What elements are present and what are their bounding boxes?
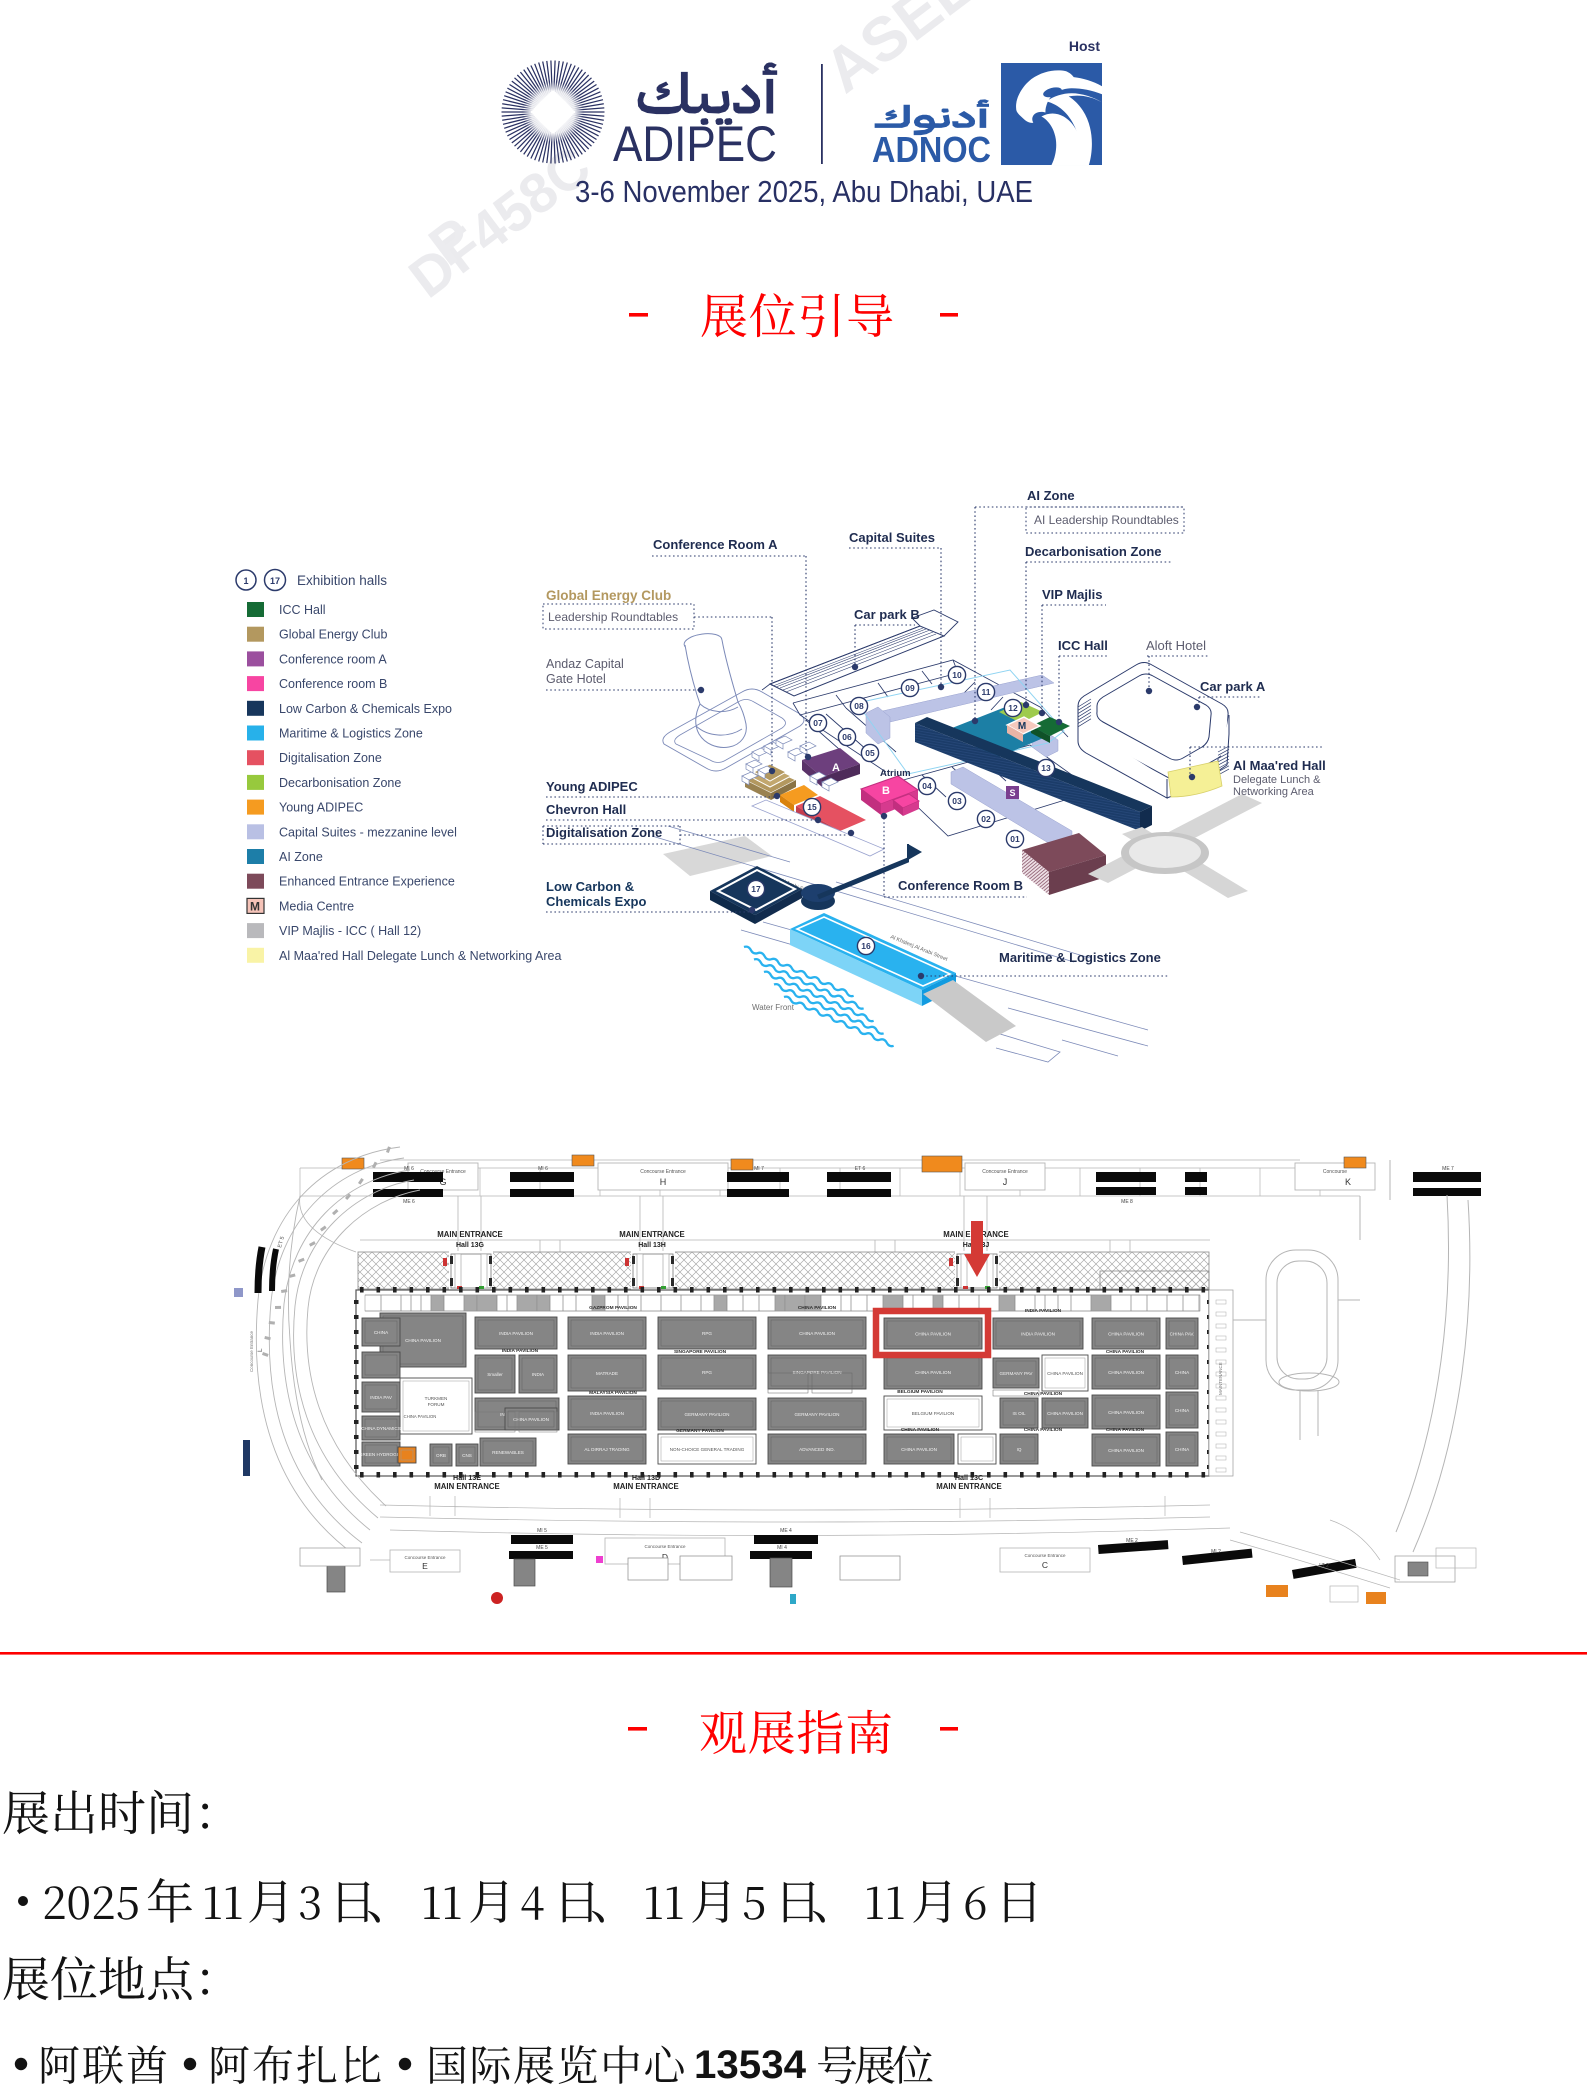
svg-text:FORUM: FORUM <box>428 1402 445 1407</box>
svg-text:Exhibition halls: Exhibition halls <box>297 573 387 588</box>
svg-text:INDIA PAV: INDIA PAV <box>370 1395 393 1400</box>
svg-text:CHINA PAVILION: CHINA PAVILION <box>1106 1427 1145 1433</box>
svg-text:1: 1 <box>243 576 248 586</box>
svg-text:CHINA PAVILION: CHINA PAVILION <box>1108 1448 1144 1453</box>
svg-text:ADNOC: ADNOC <box>872 129 991 170</box>
svg-text:Decarbonisation Zone: Decarbonisation Zone <box>1025 544 1162 559</box>
svg-text:CHINA PAVILION: CHINA PAVILION <box>404 1414 437 1419</box>
svg-text:Concourse Entrance: Concourse Entrance <box>249 1330 254 1372</box>
svg-text:INDIA: INDIA <box>532 1372 545 1377</box>
svg-text:MI 5: MI 5 <box>537 1528 547 1534</box>
svg-text:Water Front: Water Front <box>752 1003 795 1012</box>
svg-text:A: A <box>832 762 840 774</box>
svg-text:ORB: ORB <box>436 1453 446 1458</box>
svg-text:ICC Hall: ICC Hall <box>279 603 326 617</box>
svg-text:15: 15 <box>807 802 817 812</box>
svg-text:CHINA PAVILION: CHINA PAVILION <box>901 1447 937 1452</box>
svg-text:Hall 13E: Hall 13E <box>453 1473 481 1482</box>
svg-text:MAIN ENTRANCE: MAIN ENTRANCE <box>434 1482 499 1491</box>
svg-text:Global Energy Club: Global Energy Club <box>546 588 671 603</box>
svg-text:MAIN ENTRANCE: MAIN ENTRANCE <box>936 1482 1001 1491</box>
svg-text:Car park A: Car park A <box>1200 679 1266 694</box>
svg-text:VIP Majlis - ICC ( Hall 12): VIP Majlis - ICC ( Hall 12) <box>279 924 421 938</box>
svg-text:L: L <box>257 1348 264 1352</box>
svg-text:GERMANY PAVILION: GERMANY PAVILION <box>685 1412 730 1417</box>
svg-text:CHINA: CHINA <box>374 1330 389 1335</box>
svg-text:Maritime & Logistics Zone: Maritime & Logistics Zone <box>279 727 423 741</box>
svg-text:C: C <box>1042 1560 1048 1570</box>
svg-text:CHINA PAVILION: CHINA PAVILION <box>1106 1349 1145 1355</box>
svg-text:07: 07 <box>813 718 823 728</box>
svg-text:Hall 13G: Hall 13G <box>456 1242 485 1249</box>
svg-text:CHINA PAVILION: CHINA PAVILION <box>405 1338 441 1343</box>
svg-text:CHINA PAVILION: CHINA PAVILION <box>1108 1410 1144 1415</box>
svg-text:ET 6: ET 6 <box>855 1166 866 1172</box>
svg-text:17: 17 <box>751 884 761 894</box>
svg-text:Conference room B: Conference room B <box>279 677 387 691</box>
svg-text:CNS: CNS <box>462 1453 472 1458</box>
svg-text:INDIA PAVILION: INDIA PAVILION <box>502 1348 539 1354</box>
svg-text:AL DIRRAJ TRADING: AL DIRRAJ TRADING <box>584 1447 630 1452</box>
svg-text:MI 4: MI 4 <box>777 1545 787 1551</box>
svg-text:S: S <box>1009 788 1015 798</box>
svg-text:AI Zone: AI Zone <box>1027 488 1075 503</box>
svg-text:16: 16 <box>861 941 871 951</box>
svg-text:CHINA PAVILION: CHINA PAVILION <box>1108 1332 1144 1337</box>
svg-text:RPG: RPG <box>702 1331 712 1336</box>
svg-text:K: K <box>1345 1177 1351 1187</box>
svg-text:Maritime & Logistics Zone: Maritime & Logistics Zone <box>999 950 1161 965</box>
svg-text:INDIA PAVILION: INDIA PAVILION <box>590 1331 624 1336</box>
svg-text:Host: Host <box>1069 38 1100 54</box>
svg-text:ME 7: ME 7 <box>1442 1166 1454 1172</box>
svg-text:Media Centre: Media Centre <box>279 899 354 913</box>
svg-text:SINGAPORE PAVILION: SINGAPORE PAVILION <box>792 1370 841 1375</box>
svg-text:Smaller: Smaller <box>487 1372 503 1377</box>
svg-text:Enhanced Entrance Experience: Enhanced Entrance Experience <box>279 875 455 889</box>
svg-text:INDIA PAVILION: INDIA PAVILION <box>590 1411 624 1416</box>
svg-text:Andaz Capital: Andaz Capital <box>546 657 624 671</box>
svg-text:MAIN ENTRANCE: MAIN ENTRANCE <box>437 1230 502 1239</box>
svg-text:CHINA PAVILION: CHINA PAVILION <box>798 1305 837 1311</box>
svg-text:MAIN ENTRANCE: MAIN ENTRANCE <box>619 1230 684 1239</box>
svg-text:Concourse: Concourse <box>1323 1169 1347 1175</box>
svg-text:MATRADE: MATRADE <box>596 1371 618 1376</box>
svg-text:NON-CHOICE GENERAL TRADING: NON-CHOICE GENERAL TRADING <box>670 1447 745 1452</box>
svg-text:02: 02 <box>981 814 991 824</box>
svg-text:Networking Area: Networking Area <box>1233 786 1315 798</box>
svg-text:MALAYSIA PAVILION: MALAYSIA PAVILION <box>589 1390 637 1396</box>
svg-text:IQ: IQ <box>1017 1447 1022 1452</box>
svg-text:Low Carbon &: Low Carbon & <box>546 879 634 894</box>
svg-text:CHINA PAVILION: CHINA PAVILION <box>915 1332 951 1337</box>
svg-text:M: M <box>1018 721 1026 732</box>
svg-text:09: 09 <box>905 683 915 693</box>
svg-text:Concourse Entrance: Concourse Entrance <box>982 1169 1028 1175</box>
svg-text:Decarbonisation Zone: Decarbonisation Zone <box>279 776 401 790</box>
svg-text:CHINA PAVILION: CHINA PAVILION <box>1047 1411 1083 1416</box>
svg-text:Aloft Hotel: Aloft Hotel <box>1146 638 1206 653</box>
svg-text:Digitalisation Zone: Digitalisation Zone <box>546 825 662 840</box>
svg-text:AI Leadership Roundtables: AI Leadership Roundtables <box>1034 513 1179 527</box>
svg-text:CHINA PAVILION: CHINA PAVILION <box>799 1331 835 1336</box>
svg-text:Chemicals Expo: Chemicals Expo <box>546 894 646 909</box>
svg-text:CHINA PAVILION: CHINA PAVILION <box>901 1427 940 1433</box>
svg-text:CHINA DYNAMICS: CHINA DYNAMICS <box>361 1426 401 1431</box>
svg-text:GAZPROM PAVILION: GAZPROM PAVILION <box>589 1305 637 1311</box>
svg-text:INDIA PAVILION: INDIA PAVILION <box>1025 1308 1062 1314</box>
svg-text:12: 12 <box>1008 703 1018 713</box>
svg-text:Young ADIPEC: Young ADIPEC <box>279 801 363 815</box>
svg-text:CHINA PAV.: CHINA PAV. <box>1170 1332 1195 1337</box>
svg-text:01: 01 <box>1010 834 1020 844</box>
svg-text:GERMANY PAVILION: GERMANY PAVILION <box>795 1412 840 1417</box>
svg-text:CHINA: CHINA <box>1175 1447 1190 1452</box>
svg-text:Delegate Lunch &: Delegate Lunch & <box>1233 774 1321 786</box>
svg-text:Capital Suites - mezzanine lev: Capital Suites - mezzanine level <box>279 825 457 839</box>
svg-text:03: 03 <box>952 796 962 806</box>
svg-text:ADVANCED IND.: ADVANCED IND. <box>799 1447 835 1452</box>
svg-text:Conference room A: Conference room A <box>279 652 387 666</box>
svg-text:GERMANY PAVILION: GERMANY PAVILION <box>676 1428 724 1434</box>
svg-text:MAIN ENTRANCE: MAIN ENTRANCE <box>613 1482 678 1491</box>
svg-text:ADIPEC: ADIPEC <box>613 116 777 172</box>
svg-text:MI 6: MI 6 <box>538 1166 548 1172</box>
svg-text:13: 13 <box>1041 763 1051 773</box>
svg-text:17: 17 <box>270 576 280 586</box>
svg-text:INDIA PAVILION: INDIA PAVILION <box>1021 1332 1055 1337</box>
svg-text:ET 5: ET 5 <box>277 1236 286 1249</box>
svg-text:3-6 November 2025, Abu Dhabi,: 3-6 November 2025, Abu Dhabi, UAE <box>575 174 1033 209</box>
svg-text:CHINA: CHINA <box>1175 1408 1190 1413</box>
svg-text:IS OIL: IS OIL <box>1012 1411 1025 1416</box>
svg-text:13534: 13534 <box>694 2043 807 2087</box>
svg-text:Young ADIPEC: Young ADIPEC <box>546 779 638 794</box>
svg-text:ME 6: ME 6 <box>403 1199 415 1205</box>
svg-text:Concourse Entrance: Concourse Entrance <box>404 1555 446 1560</box>
svg-text:Leadership Roundtables: Leadership Roundtables <box>548 610 678 624</box>
svg-text:Al Maa'red Hall Delegate Lunch: Al Maa'red Hall Delegate Lunch & Network… <box>279 949 561 963</box>
svg-text:J: J <box>1003 1177 1008 1187</box>
svg-text:MAINTENANCE: MAINTENANCE <box>1218 1362 1223 1395</box>
svg-text:H: H <box>660 1177 667 1187</box>
svg-text:VIP Majlis: VIP Majlis <box>1042 587 1102 602</box>
svg-text:Concourse Entrance: Concourse Entrance <box>640 1169 686 1175</box>
svg-text:Low Carbon & Chemicals Expo: Low Carbon & Chemicals Expo <box>279 702 452 716</box>
svg-text:GREEN HYDROGEN: GREEN HYDROGEN <box>359 1452 403 1457</box>
svg-text:Al Maa'red Hall: Al Maa'red Hall <box>1233 758 1326 773</box>
svg-text:BELGIUM PAVILION: BELGIUM PAVILION <box>897 1389 943 1395</box>
svg-text:CHINA PAVILION: CHINA PAVILION <box>1024 1427 1063 1433</box>
svg-text:M: M <box>250 899 260 913</box>
svg-text:ME 4: ME 4 <box>780 1528 792 1534</box>
svg-text:Conference Room A: Conference Room A <box>653 537 778 552</box>
svg-text:ME 2: ME 2 <box>1126 1538 1138 1544</box>
svg-text:MI 2: MI 2 <box>1211 1549 1221 1555</box>
svg-text:Capital Suites: Capital Suites <box>849 530 935 545</box>
svg-text:Hall 13C: Hall 13C <box>955 1473 983 1482</box>
svg-text:ME 5: ME 5 <box>536 1545 548 1551</box>
svg-text:Atrium: Atrium <box>880 768 911 779</box>
svg-text:11: 11 <box>982 687 991 697</box>
svg-text:TURKMEN: TURKMEN <box>425 1396 448 1401</box>
svg-text:CHINA PAVILION: CHINA PAVILION <box>1108 1370 1144 1375</box>
svg-text:ICC Hall: ICC Hall <box>1058 638 1108 653</box>
svg-text:Concourse Entrance: Concourse Entrance <box>644 1544 686 1549</box>
svg-text:Chevron Hall: Chevron Hall <box>546 802 626 817</box>
svg-text:Digitalisation Zone: Digitalisation Zone <box>279 751 382 765</box>
svg-text:RENEWABLES: RENEWABLES <box>492 1450 524 1455</box>
svg-text:08: 08 <box>854 701 864 711</box>
svg-text:Gate Hotel: Gate Hotel <box>546 672 606 686</box>
svg-text:E: E <box>422 1561 428 1571</box>
svg-text:INDIA PAVILION: INDIA PAVILION <box>499 1331 533 1336</box>
svg-text:CHINA PAVILION: CHINA PAVILION <box>915 1370 951 1375</box>
svg-text:ME 8: ME 8 <box>1121 1199 1133 1205</box>
svg-text:CHINA: CHINA <box>1175 1370 1190 1375</box>
svg-text:04: 04 <box>922 781 932 791</box>
svg-text:CHINA PAVILION: CHINA PAVILION <box>1047 1371 1083 1376</box>
svg-text:10: 10 <box>952 670 962 680</box>
svg-text:Conference Room B: Conference Room B <box>898 878 1023 893</box>
svg-text:CHINA PAVILION: CHINA PAVILION <box>1024 1391 1063 1397</box>
svg-text:RPG: RPG <box>702 1370 712 1375</box>
svg-text:AI Zone: AI Zone <box>279 850 323 864</box>
svg-text:Car park B: Car park B <box>854 607 920 622</box>
svg-text:06: 06 <box>842 732 852 742</box>
svg-text:B: B <box>882 785 890 797</box>
svg-text:CHINA PAVILION: CHINA PAVILION <box>513 1417 549 1422</box>
svg-text:Hall 13D: Hall 13D <box>632 1473 660 1482</box>
svg-text:GERMANY PAV: GERMANY PAV <box>1000 1371 1034 1376</box>
svg-text:MI 7: MI 7 <box>754 1166 764 1172</box>
svg-text:Hall 13H: Hall 13H <box>638 1242 666 1249</box>
svg-text:SINGAPORE PAVILION: SINGAPORE PAVILION <box>674 1349 727 1355</box>
svg-text:BELGIUM PAVILION: BELGIUM PAVILION <box>912 1411 954 1416</box>
svg-text:Concourse Entrance: Concourse Entrance <box>1024 1553 1066 1558</box>
svg-text:Global Energy Club: Global Energy Club <box>279 628 387 642</box>
svg-text:05: 05 <box>865 748 875 758</box>
